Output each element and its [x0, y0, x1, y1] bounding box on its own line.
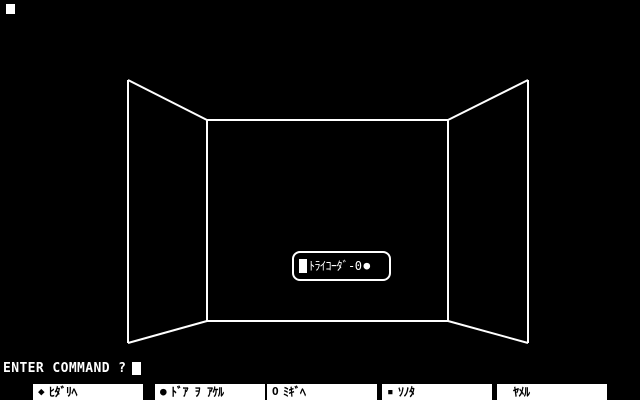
left-wall — [128, 80, 207, 343]
block-cursor-icon — [299, 259, 307, 273]
command-input-line[interactable]: ENTER COMMAND ? — [3, 361, 141, 375]
menu-item-hidarihe[interactable]: ◆ ﾋﾀﾞﾘﾍ — [33, 384, 143, 400]
open-circle-icon: O — [272, 384, 283, 400]
menu-item-label: ｿﾉﾀ — [398, 384, 415, 400]
game-screen: ﾄﾗｲｺｰﾀﾞ-0 ● ENTER COMMAND ? ◆ ﾋﾀﾞﾘﾍ ● ﾄﾞ… — [0, 0, 640, 400]
menu-item-yameru[interactable]: ﾔﾒﾙ — [497, 384, 607, 400]
wireframe-room — [0, 0, 640, 400]
menu-item-label: ﾋﾀﾞﾘﾍ — [49, 384, 77, 400]
filled-diamond-icon: ◆ — [38, 384, 49, 400]
right-wall — [448, 80, 528, 343]
tricorder-label-box: ﾄﾗｲｺｰﾀﾞ-0 ● — [292, 251, 391, 281]
small-square-icon: ▪ — [387, 384, 398, 400]
menu-item-label: ﾄﾞｱ ｦ ｱｹﾙ — [171, 384, 223, 400]
bullet-icon: ● — [363, 259, 370, 273]
menu-item-migihe[interactable]: O ﾐｷﾞﾍ — [267, 384, 377, 400]
input-cursor — [132, 362, 141, 375]
back-wall — [207, 120, 448, 321]
menu-item-label: ﾔﾒﾙ — [513, 384, 530, 400]
filled-circle-icon: ● — [160, 384, 171, 400]
tricorder-label: ﾄﾗｲｺｰﾀﾞ-0 — [309, 259, 361, 273]
menu-item-doa-wo-akeru[interactable]: ● ﾄﾞｱ ｦ ｱｹﾙ — [155, 384, 265, 400]
menu-item-label: ﾐｷﾞﾍ — [283, 384, 306, 400]
menu-item-sonota[interactable]: ▪ ｿﾉﾀ — [382, 384, 492, 400]
command-prompt: ENTER COMMAND ? — [3, 361, 126, 376]
